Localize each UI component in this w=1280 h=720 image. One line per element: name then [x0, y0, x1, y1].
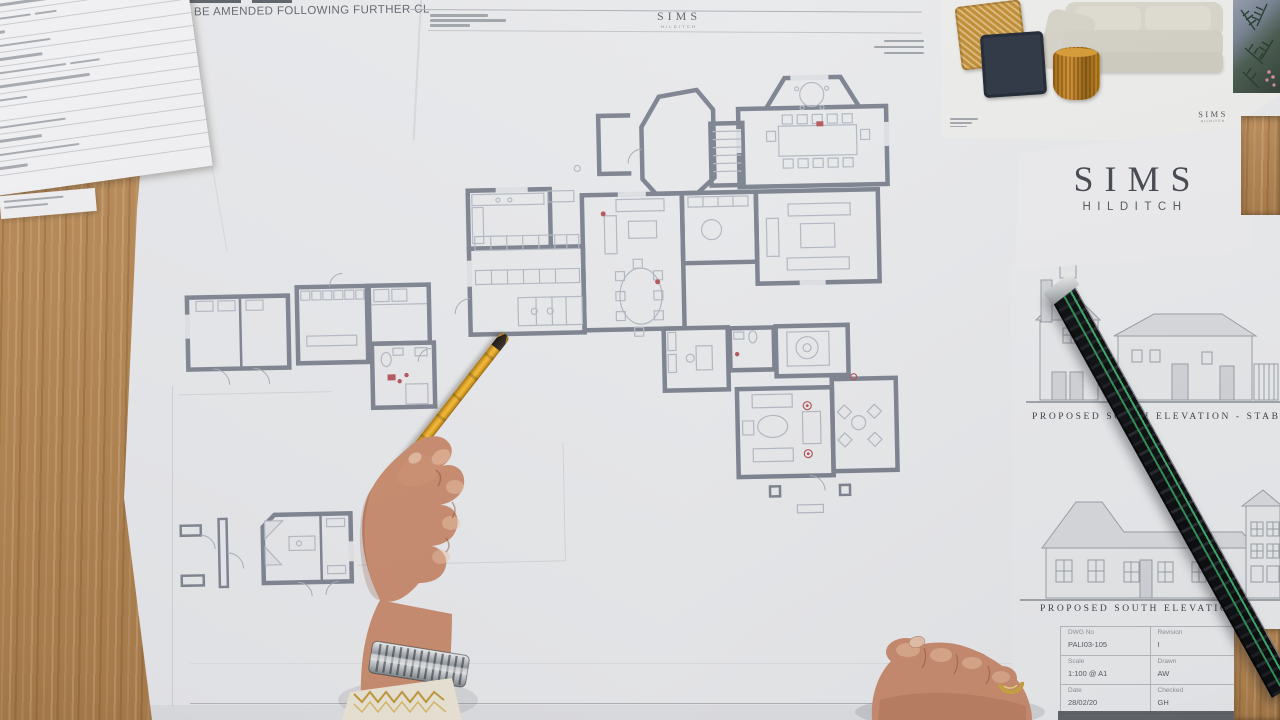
title-block-row: Date 28/02/20 Checked GH — [1061, 684, 1239, 713]
kitchen-island — [518, 296, 583, 325]
cell-value: GH — [1158, 698, 1233, 707]
cell-value: PALI03-105 — [1068, 640, 1143, 649]
mood-board: SIMS HILDITCH — [941, 0, 1280, 142]
sims-hilditch-logo-large: SIMS HILDITCH — [1022, 158, 1242, 213]
cell-label: Checked — [1158, 687, 1233, 694]
cell-value: AW — [1158, 669, 1233, 678]
cell-value: I — [1158, 640, 1233, 649]
elevation-drawing-main — [1020, 490, 1280, 600]
title-block-row: DWG No PALI03-105 Revision I — [1061, 626, 1239, 655]
dwg-no-cell: DWG No PALI03-105 — [1061, 627, 1150, 655]
checked-cell: Checked GH — [1150, 685, 1240, 713]
date-cell: Date 28/02/20 — [1061, 685, 1150, 713]
cell-label: Revision — [1158, 629, 1233, 636]
scale-cell: Scale 1:100 @ A1 — [1061, 656, 1150, 684]
cell-value: 28/02/20 — [1068, 698, 1143, 707]
logo-sub: HILDITCH — [1022, 201, 1242, 213]
site-boundary-lines — [178, 387, 566, 569]
cushion-navy — [980, 31, 1047, 98]
fern-pattern — [1233, 0, 1280, 93]
drawn-cell: Drawn AW — [1150, 656, 1240, 684]
sofa-front — [1087, 52, 1223, 72]
elevation-caption-main: PROPOSED SOUTH ELEVATION — [1040, 604, 1239, 614]
title-block-row: Scale 1:100 @ A1 Drawn AW — [1061, 655, 1239, 684]
fabric-swatch-fern — [1233, 0, 1280, 93]
cell-label: DWG No — [1068, 629, 1143, 636]
cell-label: Date — [1068, 687, 1143, 694]
title-block-footer-band — [1058, 711, 1244, 720]
elevation-caption-stables: PROPOSED SOUTH ELEVATION - STAB — [1032, 412, 1280, 422]
title-block: DWG No PALI03-105 Revision I Scale 1:100… — [1060, 626, 1240, 714]
desk-scene: O BE AMENDED FOLLOWING FURTHER CL SIMS H… — [0, 0, 1280, 720]
logo-name: SIMS — [1022, 158, 1242, 200]
revision-cell: Revision I — [1150, 627, 1240, 655]
dining-table — [778, 125, 857, 157]
sofa-cushion — [1145, 6, 1211, 32]
desk-gap-top-right — [1241, 116, 1280, 215]
cell-label: Scale — [1068, 658, 1143, 665]
cell-label: Drawn — [1158, 658, 1233, 665]
sims-hilditch-logo: SIMS HILDITCH — [1191, 109, 1235, 124]
logo-sub: HILDITCH — [1191, 119, 1235, 124]
cell-value: 1:100 @ A1 — [1068, 669, 1143, 678]
mood-board-caption-lines — [950, 116, 978, 129]
fringed-stool — [1053, 47, 1100, 100]
